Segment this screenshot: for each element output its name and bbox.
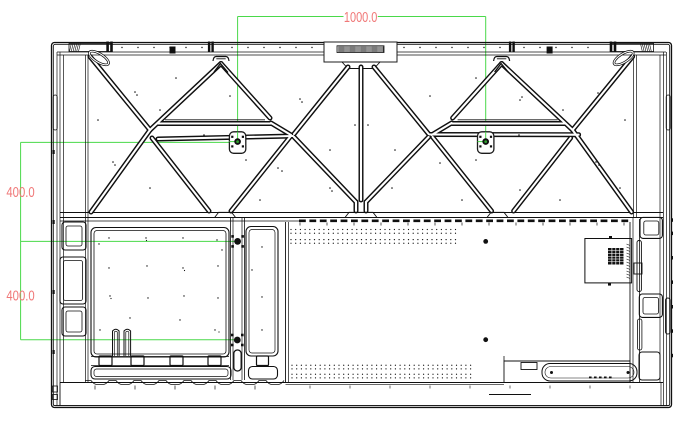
svg-text:400.0: 400.0 xyxy=(6,289,34,305)
svg-text:400.0: 400.0 xyxy=(6,185,34,201)
svg-text:1000.0: 1000.0 xyxy=(344,10,378,26)
